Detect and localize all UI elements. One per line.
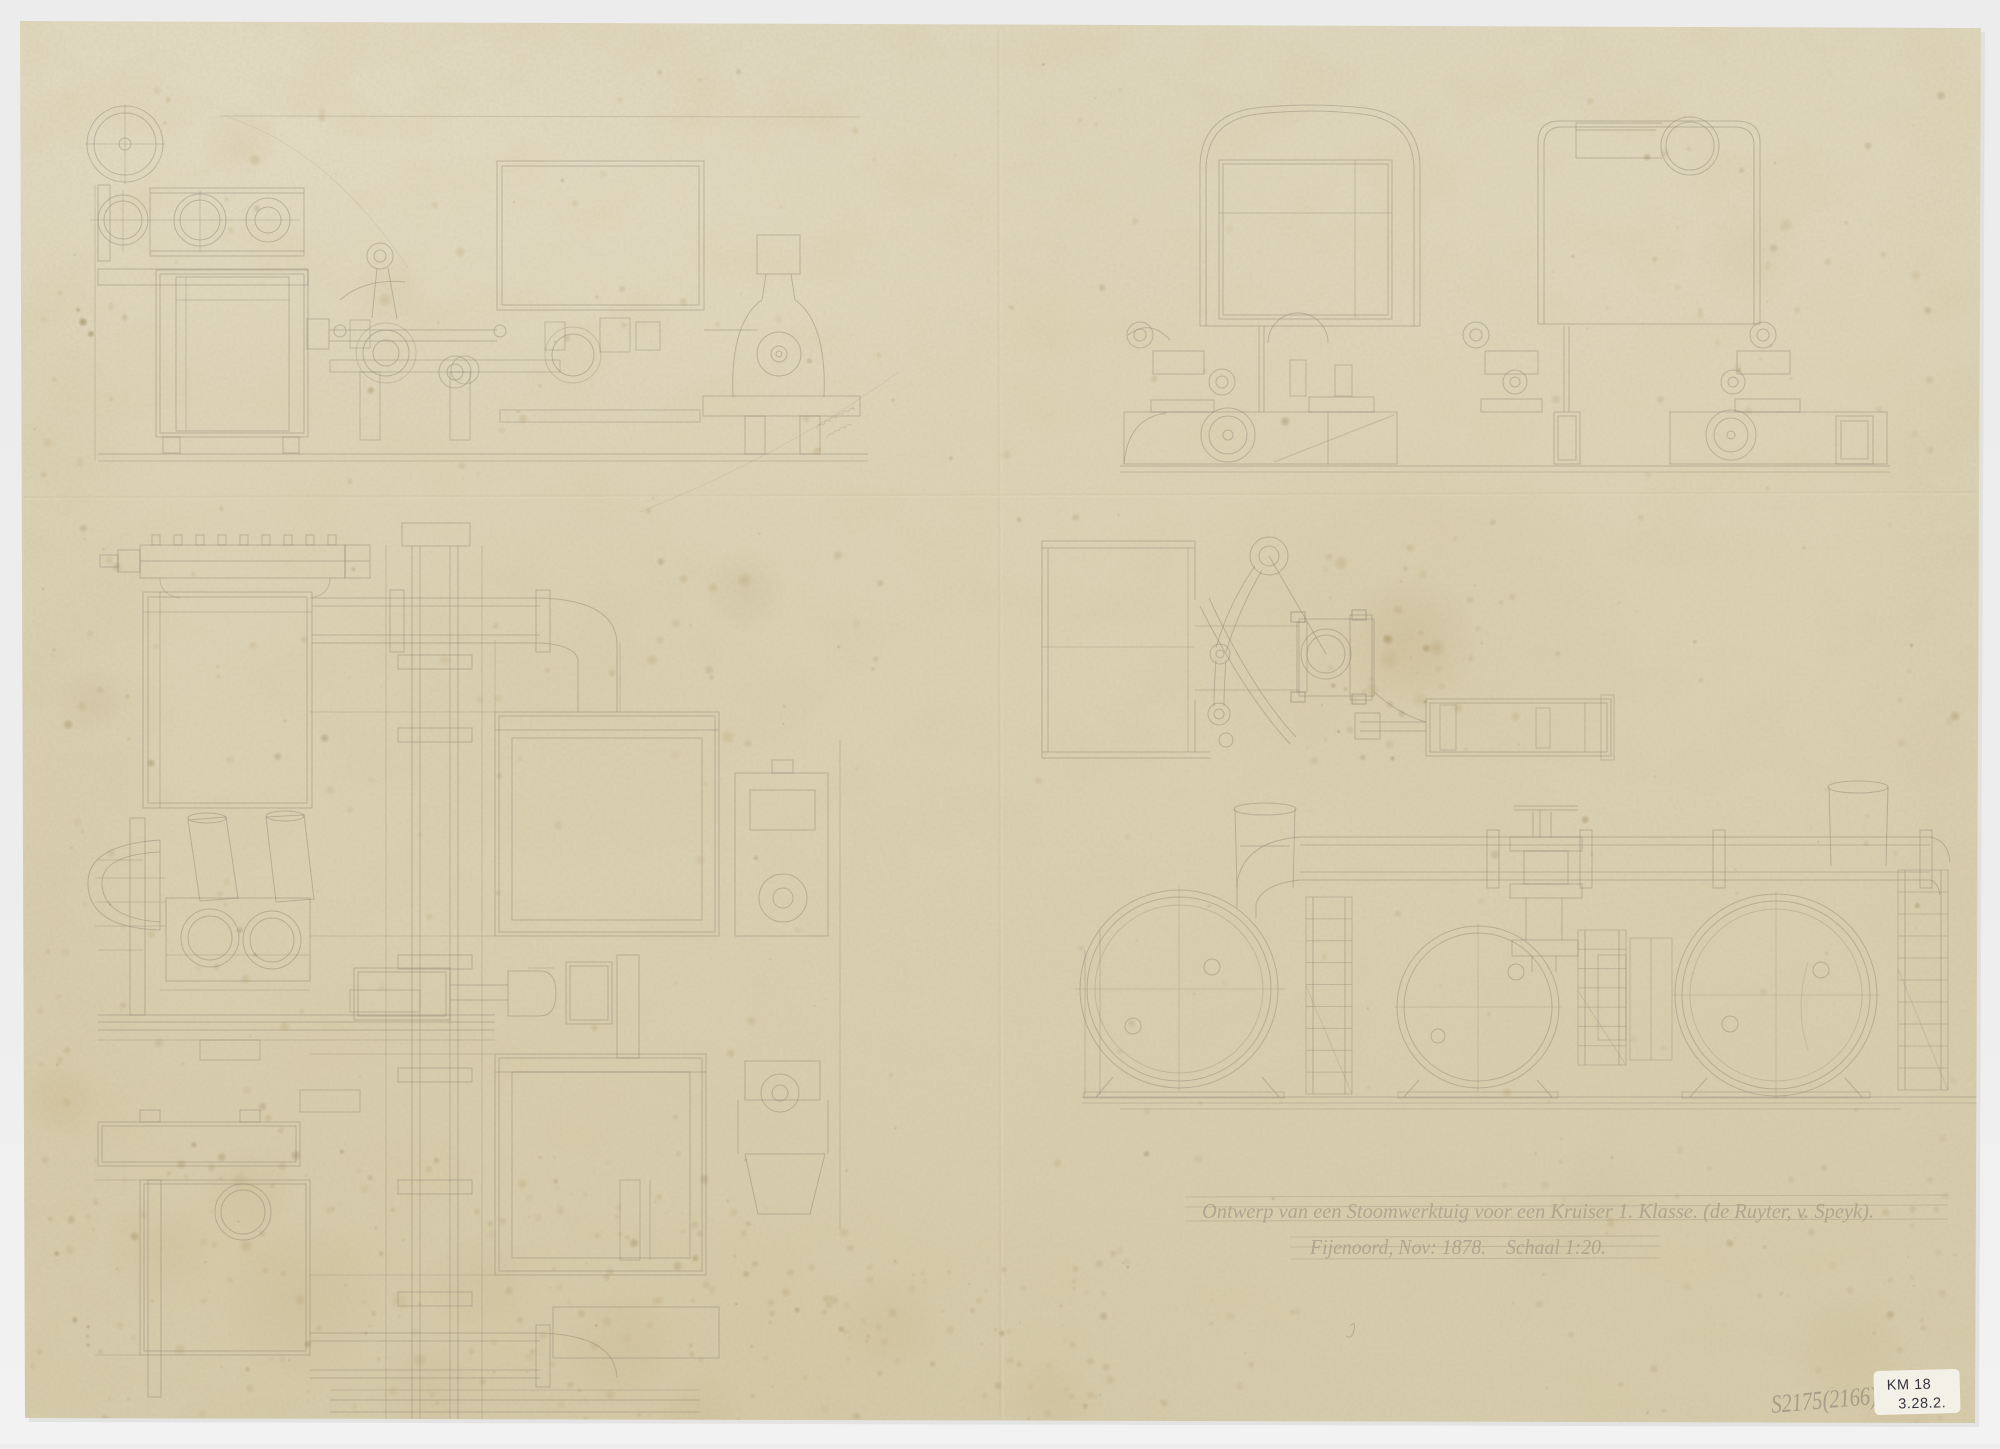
svg-text:3.28.2.: 3.28.2.: [1898, 1395, 1946, 1412]
svg-text:KM 18: KM 18: [1887, 1377, 1932, 1394]
